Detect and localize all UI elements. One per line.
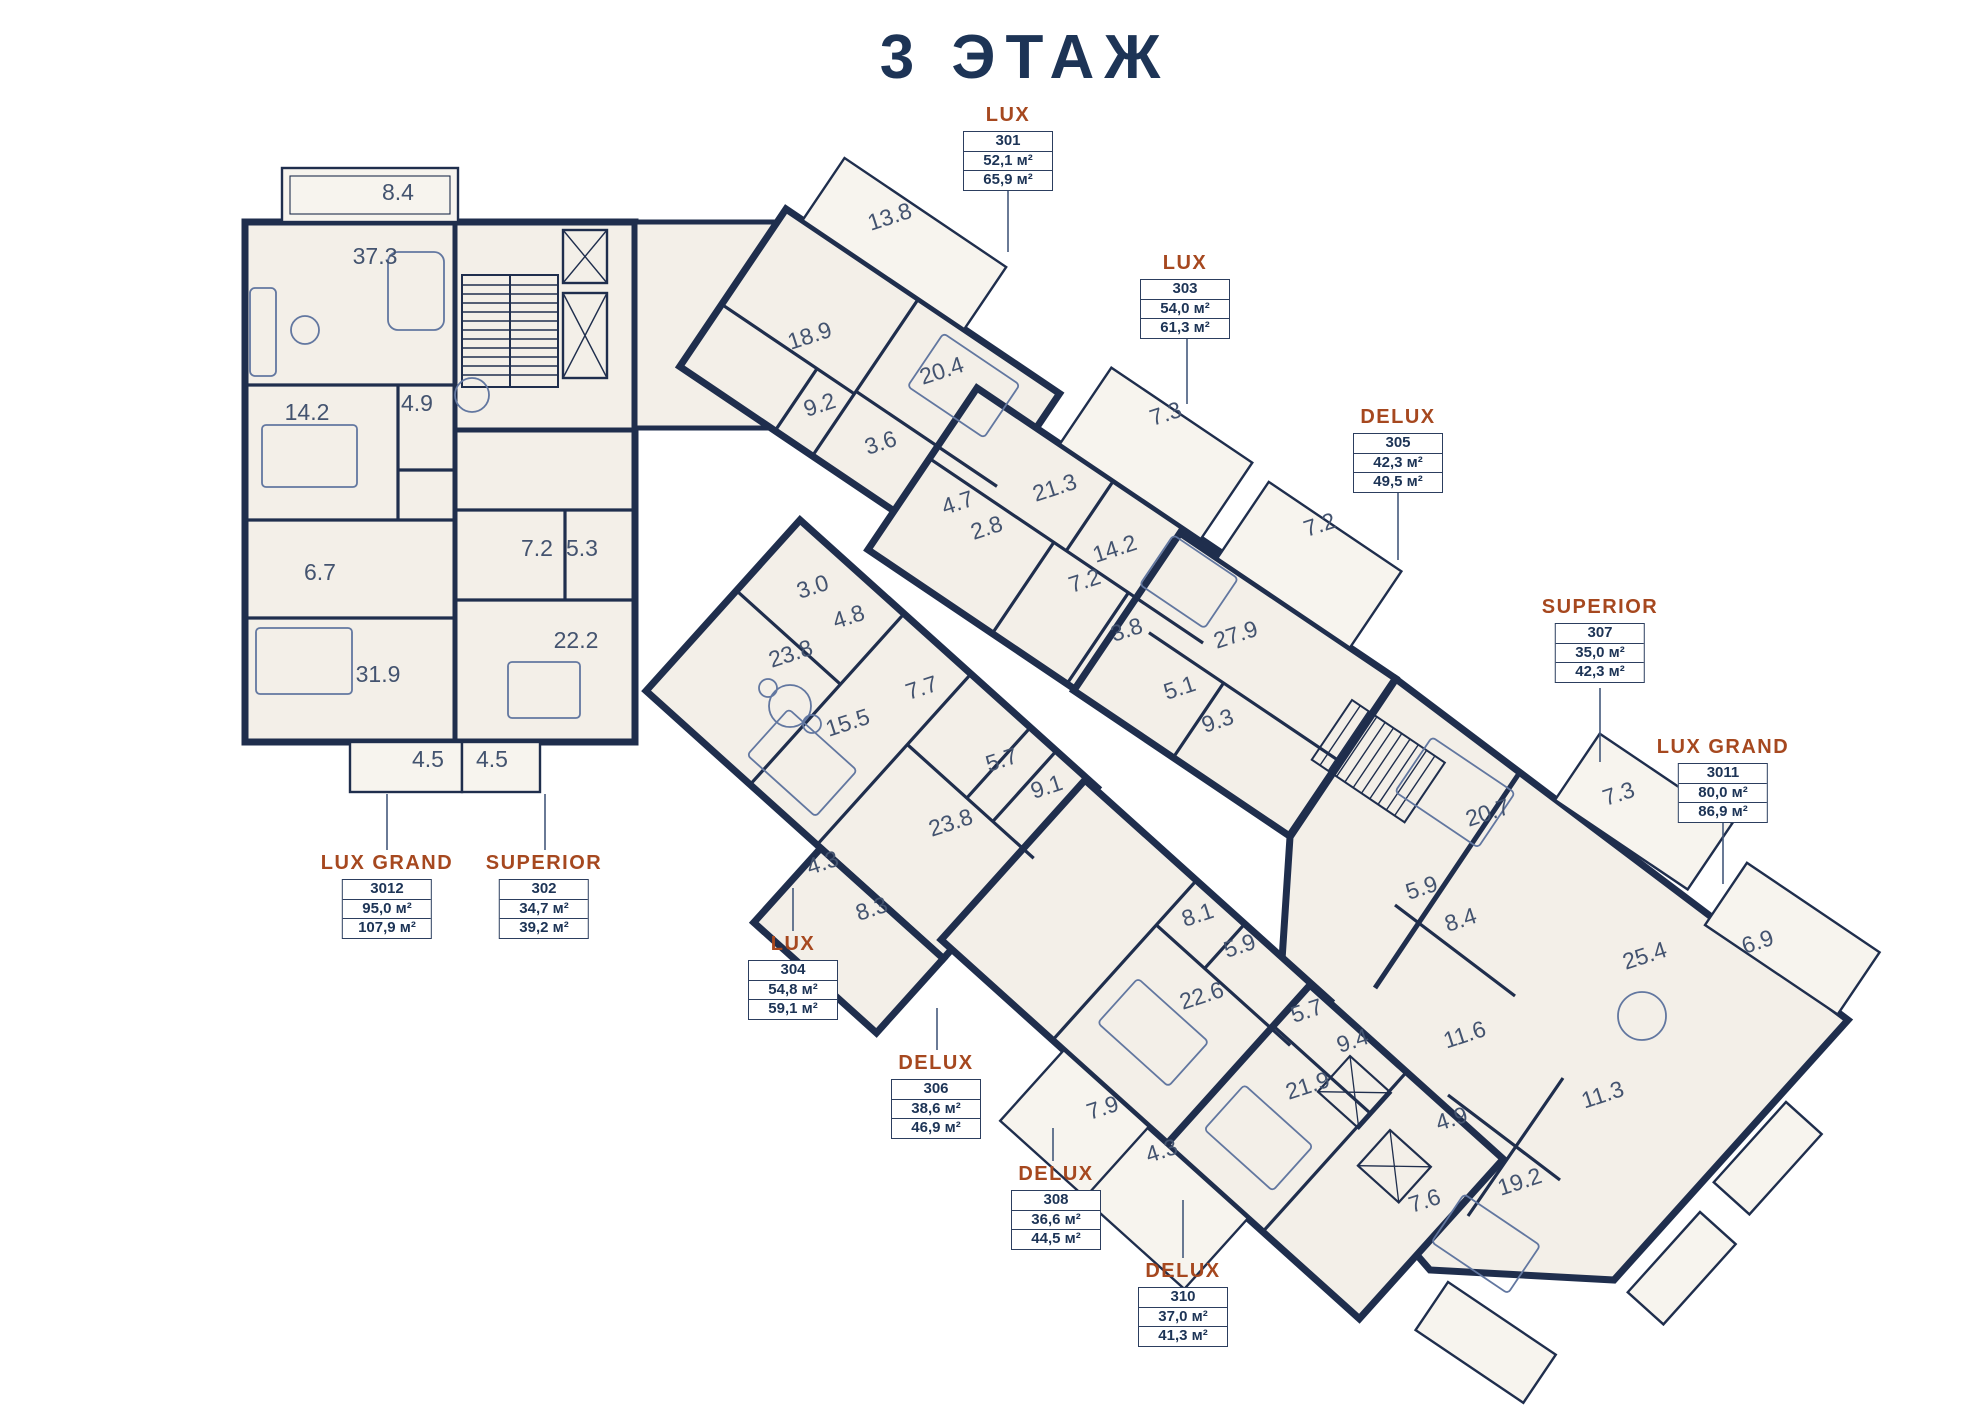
apartment-number: 3011 <box>1679 764 1767 783</box>
apartment-label: LUX 303 54,0 м² 61,3 м² <box>1140 252 1230 339</box>
apartment-label: LUX GRAND 3012 95,0 м² 107,9 м² <box>321 852 453 939</box>
bay-window <box>1416 1282 1556 1403</box>
apartment-label: DELUX 306 38,6 м² 46,9 м² <box>891 1052 981 1139</box>
balcony <box>350 742 462 792</box>
floor-plan-page: 3 ЭТАЖ <box>0 0 1980 1414</box>
apartment-info-box: 303 54,0 м² 61,3 м² <box>1140 279 1230 339</box>
apartment-label: DELUX 308 36,6 м² 44,5 м² <box>1011 1163 1101 1250</box>
room-area-label: 4.5 <box>476 746 508 772</box>
apartment-info-box: 307 35,0 м² 42,3 м² <box>1555 623 1645 683</box>
apartment-info-box: 301 52,1 м² 65,9 м² <box>963 131 1053 191</box>
apartment-label: SUPERIOR 302 34,7 м² 39,2 м² <box>486 852 602 939</box>
room-area-label: 8.4 <box>382 179 414 205</box>
apartment-total-area: 41,3 м² <box>1139 1326 1227 1346</box>
room-area-label: 6.7 <box>304 559 336 585</box>
apartment-label: LUX 301 52,1 м² 65,9 м² <box>963 104 1053 191</box>
apartment-type: LUX <box>963 104 1053 127</box>
room-area-label: 37.3 <box>353 243 398 269</box>
apartment-info-box: 302 34,7 м² 39,2 м² <box>499 879 589 939</box>
apartment-type: SUPERIOR <box>1542 596 1658 619</box>
apartment-total-area: 61,3 м² <box>1141 318 1229 338</box>
apartment-label: DELUX 305 42,3 м² 49,5 м² <box>1353 406 1443 493</box>
apartment-info-box: 308 36,6 м² 44,5 м² <box>1011 1190 1101 1250</box>
floor-plan-svg: 8.437.314.24.96.731.97.25.322.24.54.513.… <box>0 0 1980 1414</box>
apartment-info-box: 305 42,3 м² 49,5 м² <box>1353 433 1443 493</box>
apartment-info-box: 310 37,0 м² 41,3 м² <box>1138 1287 1228 1347</box>
apartment-info-box: 306 38,6 м² 46,9 м² <box>891 1079 981 1139</box>
apartment-total-area: 44,5 м² <box>1012 1229 1100 1249</box>
apartment-number: 301 <box>964 132 1052 151</box>
apartment-living-area: 80,0 м² <box>1679 783 1767 803</box>
apartment-label: DELUX 310 37,0 м² 41,3 м² <box>1138 1260 1228 1347</box>
apartment-number: 310 <box>1139 1288 1227 1307</box>
apartment-number: 308 <box>1012 1191 1100 1210</box>
apartment-living-area: 37,0 м² <box>1139 1307 1227 1327</box>
apartment-type: DELUX <box>1011 1163 1101 1186</box>
apartment-living-area: 42,3 м² <box>1354 453 1442 473</box>
apartment-living-area: 54,8 м² <box>749 980 837 1000</box>
apartment-type: LUX GRAND <box>321 852 453 875</box>
apartment-living-area: 54,0 м² <box>1141 299 1229 319</box>
room-area-label: 5.3 <box>566 535 598 561</box>
apartment-info-box: 3012 95,0 м² 107,9 м² <box>342 879 432 939</box>
apartment-total-area: 65,9 м² <box>964 170 1052 190</box>
apartment-label: LUX GRAND 3011 80,0 м² 86,9 м² <box>1657 736 1789 823</box>
apartment-info-box: 3011 80,0 м² 86,9 м² <box>1678 763 1768 823</box>
apartment-type: DELUX <box>891 1052 981 1075</box>
apartment-living-area: 34,7 м² <box>500 899 588 919</box>
apartment-number: 305 <box>1354 434 1442 453</box>
apartment-total-area: 86,9 м² <box>1679 802 1767 822</box>
apartment-info-box: 304 54,8 м² 59,1 м² <box>748 960 838 1020</box>
apartment-living-area: 52,1 м² <box>964 151 1052 171</box>
apartment-living-area: 95,0 м² <box>343 899 431 919</box>
apartment-type: LUX <box>748 933 838 956</box>
room-area-label: 7.2 <box>521 535 553 561</box>
apartment-total-area: 42,3 м² <box>1556 662 1644 682</box>
apartment-total-area: 46,9 м² <box>892 1118 980 1138</box>
apartment-total-area: 49,5 м² <box>1354 472 1442 492</box>
apartment-total-area: 107,9 м² <box>343 918 431 938</box>
apartment-type: LUX GRAND <box>1657 736 1789 759</box>
apartment-living-area: 38,6 м² <box>892 1099 980 1119</box>
room-area-label: 4.9 <box>401 390 433 416</box>
apartment-type: DELUX <box>1138 1260 1228 1283</box>
room-area-label: 31.9 <box>356 661 401 687</box>
apartment-number: 303 <box>1141 280 1229 299</box>
apartment-living-area: 36,6 м² <box>1012 1210 1100 1230</box>
apartment-total-area: 59,1 м² <box>749 999 837 1019</box>
room-area-label: 14.2 <box>285 399 330 425</box>
apartment-number: 307 <box>1556 624 1644 643</box>
room-area-label: 22.2 <box>554 627 599 653</box>
apartment-label: SUPERIOR 307 35,0 м² 42,3 м² <box>1542 596 1658 683</box>
left-block <box>245 222 635 742</box>
apartment-type: DELUX <box>1353 406 1443 429</box>
apartment-total-area: 39,2 м² <box>500 918 588 938</box>
apartment-type: SUPERIOR <box>486 852 602 875</box>
apartment-label: LUX 304 54,8 м² 59,1 м² <box>748 933 838 1020</box>
apartment-number: 304 <box>749 961 837 980</box>
apartment-type: LUX <box>1140 252 1230 275</box>
apartment-number: 302 <box>500 880 588 899</box>
room-area-label: 4.5 <box>412 746 444 772</box>
apartment-number: 306 <box>892 1080 980 1099</box>
apartment-living-area: 35,0 м² <box>1556 643 1644 663</box>
apartment-number: 3012 <box>343 880 431 899</box>
